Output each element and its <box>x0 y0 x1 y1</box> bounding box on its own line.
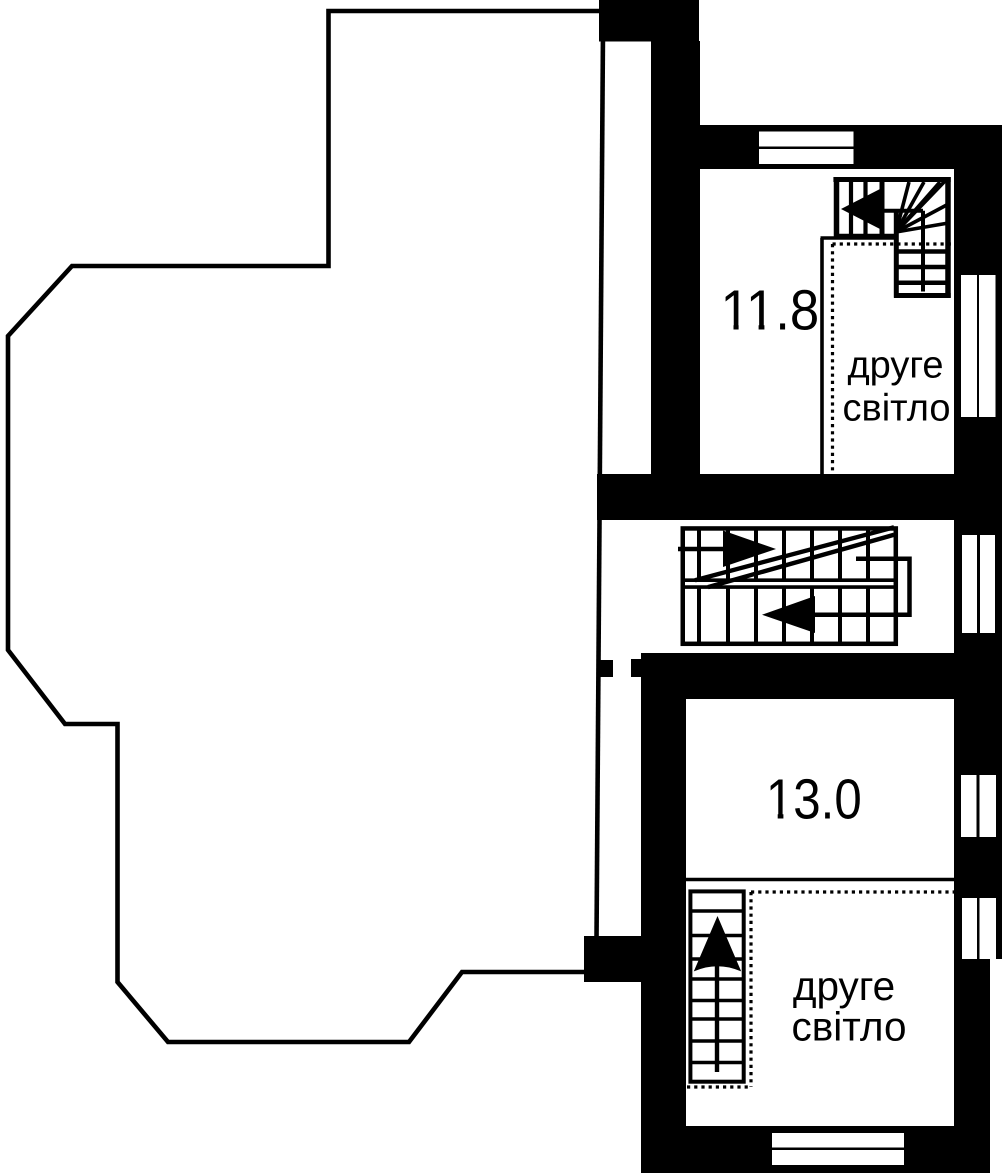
svg-text:13.0: 13.0 <box>766 768 862 831</box>
svg-text:світло: світло <box>843 387 951 429</box>
svg-text:друге: друге <box>847 345 943 387</box>
svg-text:світло: світло <box>791 1004 906 1050</box>
svg-text:друге: друге <box>793 963 895 1009</box>
svg-text:11.8: 11.8 <box>721 279 820 342</box>
